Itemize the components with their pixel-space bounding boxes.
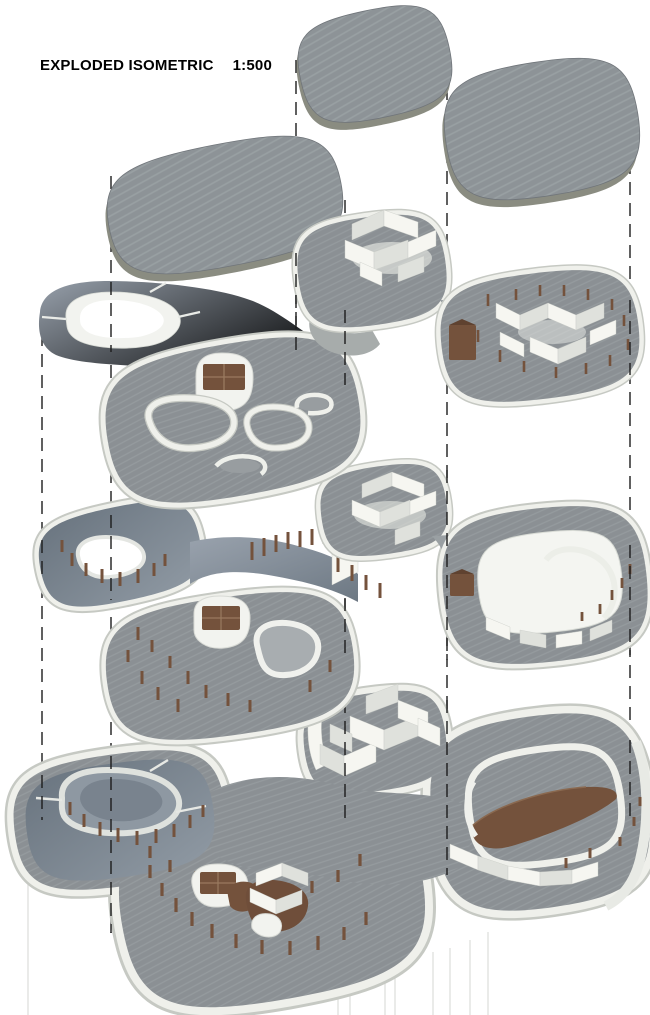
tall-timber-box xyxy=(449,319,476,360)
floor-opening xyxy=(247,407,309,448)
floor-opening xyxy=(148,398,234,448)
curved-enclosure xyxy=(257,623,319,675)
furniture-box xyxy=(450,569,474,596)
roof-surface xyxy=(436,48,649,211)
ground-floor-plate xyxy=(6,684,650,1015)
roof-slab-right xyxy=(433,48,650,218)
drawing-scale: 1:500 xyxy=(233,57,272,74)
drawing-title-text: EXPLODED ISOMETRIC xyxy=(40,57,214,74)
roof-surface xyxy=(289,0,460,133)
exploded-isometric-drawing xyxy=(0,0,650,1015)
drawing-sheet: EXPLODED ISOMETRIC 1:500 xyxy=(0,0,650,1015)
first-floor-plate-right xyxy=(315,458,650,673)
drawing-title: EXPLODED ISOMETRIC 1:500 xyxy=(40,57,272,74)
roof-slab-center xyxy=(286,0,462,140)
furniture-enclosure xyxy=(194,596,250,648)
